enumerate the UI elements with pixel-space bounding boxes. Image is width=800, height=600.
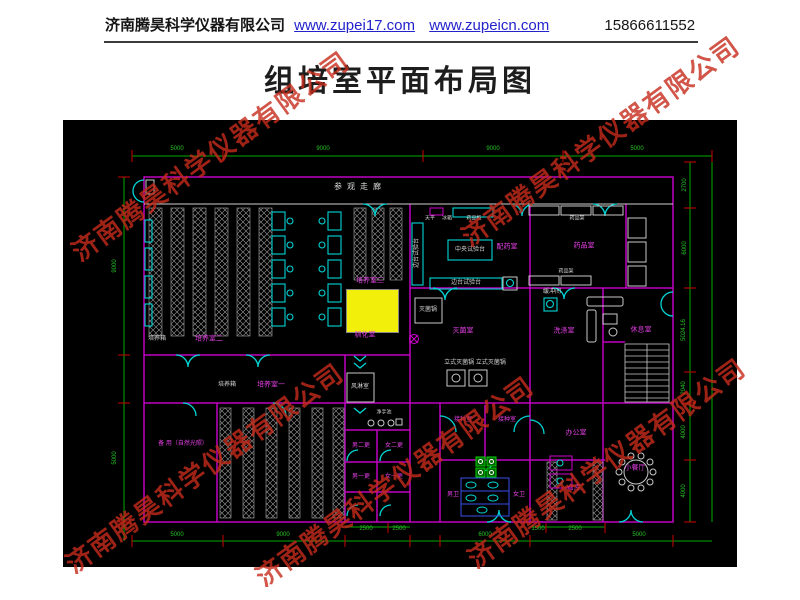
equipment-label: 立式灭菌锅 立式灭菌锅 <box>444 360 506 366</box>
room-label: 办公室 <box>566 430 587 437</box>
equipment-label: 缓冲间 <box>543 289 561 295</box>
phone-number: 15866611552 <box>604 17 695 34</box>
dimension-label: 5000 <box>170 146 183 152</box>
room-label: 灭菌室 <box>453 328 474 335</box>
header-divider <box>104 41 698 43</box>
dimension-label: 6000 <box>682 241 688 254</box>
room-label: 培养室一 <box>257 382 285 389</box>
dimension-label: 2040 <box>681 381 687 394</box>
equipment-label: 药品架 <box>558 270 573 275</box>
dimension-label: 5000 <box>630 146 643 152</box>
company-name: 济南腾昊科学仪器有限公司 <box>105 17 285 34</box>
equipment-label: 灭菌锅 <box>419 307 437 313</box>
equipment-label: 净手池 <box>376 411 391 416</box>
page: 济南腾昊科学仪器有限公司 www.zupei17.com www.zupeicn… <box>0 0 800 600</box>
room-label: 休息室 <box>631 327 652 334</box>
dimension-label: 5000 <box>632 532 645 538</box>
room-label: 洗涤室 <box>554 328 575 335</box>
staircase <box>625 344 669 402</box>
dimension-label: 6000 <box>478 532 491 538</box>
dimension-label: 2700 <box>682 178 688 191</box>
office-desks <box>410 208 573 488</box>
room-label: 小餐厅 <box>625 465 646 472</box>
floor-plan-image: 参观走廊培养室二培养室三驯化室配药室药品室灭菌室洗涤室休息室备 用（自然光照）培… <box>63 120 737 567</box>
equipment-label: 培养箱 <box>218 382 236 388</box>
room-label: 配药室 <box>497 244 518 251</box>
dimension-label: 2500 <box>392 526 405 532</box>
room-label: 培养室二 <box>195 336 223 343</box>
equipment-label: 冰箱 <box>442 217 452 222</box>
dimension-label: 9000 <box>316 146 329 152</box>
dimension-label: 5000 <box>170 532 183 538</box>
room-label: 男一更 <box>352 474 370 480</box>
room-label: 参观走廊 <box>334 183 386 191</box>
room-label: 女一更 <box>385 474 403 480</box>
link-zupei17[interactable]: www.zupei17.com <box>294 17 415 34</box>
highlight-square <box>346 289 399 333</box>
dimension-label: 2500 <box>359 526 372 532</box>
room-label: 男二更 <box>352 443 370 449</box>
equipment-label: 药品柜 <box>466 217 481 222</box>
equipment-label: 边台试验台 <box>451 280 481 286</box>
dimension-label: 9000 <box>276 532 289 538</box>
room-label: 接种室 <box>498 417 516 423</box>
dimension-label: 9000 <box>486 146 499 152</box>
link-zupeicn[interactable]: www.zupeicn.com <box>429 17 549 34</box>
dimension-label: 9000 <box>112 259 118 272</box>
dining-table <box>616 453 656 491</box>
door-symbols <box>133 180 673 522</box>
page-title: 组培室平面布局图 <box>0 56 800 100</box>
room-label: 接种室 <box>454 417 472 423</box>
dimension-label: 1500 <box>531 526 544 532</box>
dimension-label: 4000 <box>681 425 687 438</box>
equipment-label: 边台试验台 <box>414 238 420 268</box>
floor-plan-drawing <box>63 120 737 567</box>
equipment-label: 风淋室 <box>351 384 369 390</box>
dimension-label: 4000 <box>681 484 687 497</box>
dimension-label: 2500 <box>568 526 581 532</box>
dimension-label: 5000 <box>112 451 118 464</box>
room-label: 女卫 <box>513 492 525 498</box>
room-label: 培养室三 <box>356 278 384 285</box>
room-label: 女二更 <box>385 443 403 449</box>
room-label: 男卫 <box>447 492 459 498</box>
toilet-stalls <box>461 478 509 516</box>
room-label: 仓库 <box>567 485 581 492</box>
equipment-label: 天平 <box>425 217 435 222</box>
equipment-label: 中央试验台 <box>455 247 485 253</box>
dimension-lines <box>124 156 712 541</box>
room-label: 备 用（自然光照） <box>158 441 208 447</box>
equipment-label: 培养箱 <box>148 336 166 342</box>
header: 济南腾昊科学仪器有限公司 www.zupei17.com www.zupeicn… <box>0 14 800 35</box>
dimension-label: 5024.16 <box>681 319 687 341</box>
room-label: 药品室 <box>574 243 595 250</box>
equipment-label: 药品架 <box>569 217 584 222</box>
room-label: 驯化室 <box>355 332 376 339</box>
